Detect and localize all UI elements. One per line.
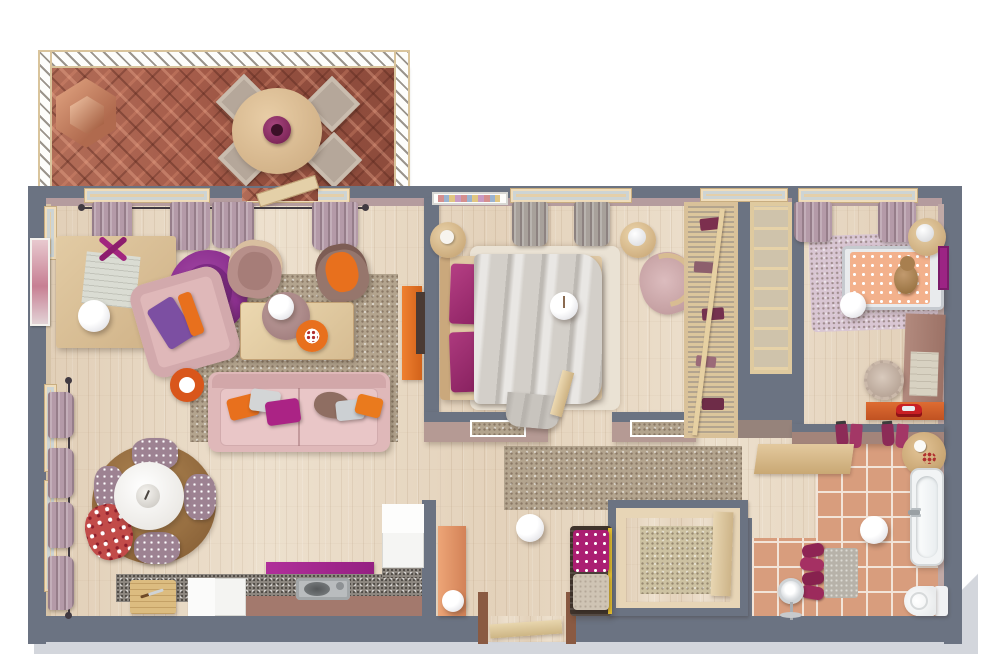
- kids-ceiling-lamp: [840, 292, 866, 318]
- wall-entry-divider: [422, 500, 436, 616]
- toilet-seat-line: [910, 592, 928, 610]
- balcony-railing-left: [38, 50, 52, 196]
- tv-screen: [416, 292, 425, 354]
- living-curtain-2: [170, 202, 210, 250]
- bath-table-berries: [922, 452, 936, 464]
- radiator-vent-2: [630, 420, 686, 437]
- wall-closet-stub: [738, 374, 794, 438]
- sofa-back: [212, 374, 386, 388]
- bedroom-curtain-1: [512, 202, 548, 246]
- desk-lamp: [78, 300, 110, 332]
- dining-chair-south: [134, 532, 180, 564]
- left-curtain-3: [48, 502, 74, 548]
- bedroom-lamp-cord: [563, 296, 565, 308]
- wall-bottom-left: [28, 616, 486, 642]
- wardrobe-clothes-item-3: [702, 307, 725, 321]
- left-curtain-4: [48, 556, 74, 610]
- kids-table-lamp: [916, 224, 934, 242]
- ladder-shelf-unit: [750, 202, 792, 374]
- floor-plan-scene: [0, 0, 1000, 655]
- living-window-1: [84, 188, 210, 203]
- bedroom-wall-art-paint: [438, 195, 500, 202]
- foundation-base: [34, 640, 978, 654]
- cutting-board: [130, 580, 176, 614]
- kitchen-sink-basin: [304, 582, 330, 596]
- living-wall-art: [30, 238, 50, 326]
- dining-chair-east: [184, 474, 216, 520]
- wall-bottom-right: [570, 616, 962, 642]
- toy-car-windows: [902, 406, 915, 411]
- entry-sphere-lamp: [442, 590, 464, 612]
- bath-mat: [824, 548, 858, 598]
- bathroom-ceiling-lamp: [860, 516, 888, 544]
- bath-vanity-shelf: [754, 444, 854, 474]
- kitchen-counter-right: [382, 568, 422, 578]
- bathtub-faucet: [908, 510, 920, 515]
- rod-finial-right: [362, 204, 369, 211]
- kids-desk-pad: [909, 352, 939, 397]
- standing-fan-head: [778, 578, 804, 604]
- kids-fluffy-stool: [864, 360, 904, 400]
- nightstand-lamp: [440, 230, 454, 244]
- bedroom-window: [510, 188, 632, 203]
- living-curtain-4: [312, 202, 358, 250]
- standing-fan-base: [780, 612, 802, 618]
- balcony-railing-top: [38, 50, 410, 68]
- left-rod-finial-bottom: [65, 612, 72, 619]
- hallway-ceiling-lamp: [516, 514, 544, 542]
- left-curtain-1: [48, 392, 74, 438]
- balcony-railing-right: [394, 50, 410, 196]
- left-curtain-2: [48, 448, 74, 498]
- serving-tray-berries: [306, 330, 318, 342]
- storage-partition: [711, 512, 734, 597]
- toilet-tank: [934, 586, 948, 616]
- entry-door-post-left: [478, 592, 488, 644]
- left-rod-finial-top: [65, 377, 72, 384]
- wall-closet-divider: [738, 198, 750, 376]
- bed-duvet: [474, 254, 602, 404]
- teddy-bear-head: [900, 256, 915, 271]
- dining-table-vase: [136, 484, 160, 508]
- daybed-pillow-magenta: [573, 530, 609, 572]
- bathtub-basin: [916, 476, 938, 558]
- bath-table-cup: [914, 440, 926, 452]
- towel-hook-2a: [881, 424, 895, 447]
- kids-curtain-1: [794, 202, 832, 242]
- wardrobe-clothes-item-5: [702, 398, 724, 410]
- orange-side-table: [170, 368, 204, 402]
- kitchen-appliance: [188, 578, 246, 616]
- living-ceiling-lamp: [268, 294, 294, 320]
- kids-wall-art: [938, 246, 949, 290]
- kitchen-faucet: [336, 582, 344, 590]
- sofa-pillow-magenta: [264, 398, 301, 426]
- fridge: [382, 504, 424, 568]
- bedroom-side-table-lamp: [628, 228, 646, 246]
- closet-window: [700, 188, 788, 202]
- balcony-vase-mouth: [271, 124, 283, 136]
- rod-finial-left: [78, 204, 85, 211]
- kids-window: [798, 188, 918, 203]
- storage-rug: [640, 526, 716, 594]
- daybed-pillow-beige: [573, 574, 609, 610]
- bedroom-curtain-2: [574, 202, 610, 246]
